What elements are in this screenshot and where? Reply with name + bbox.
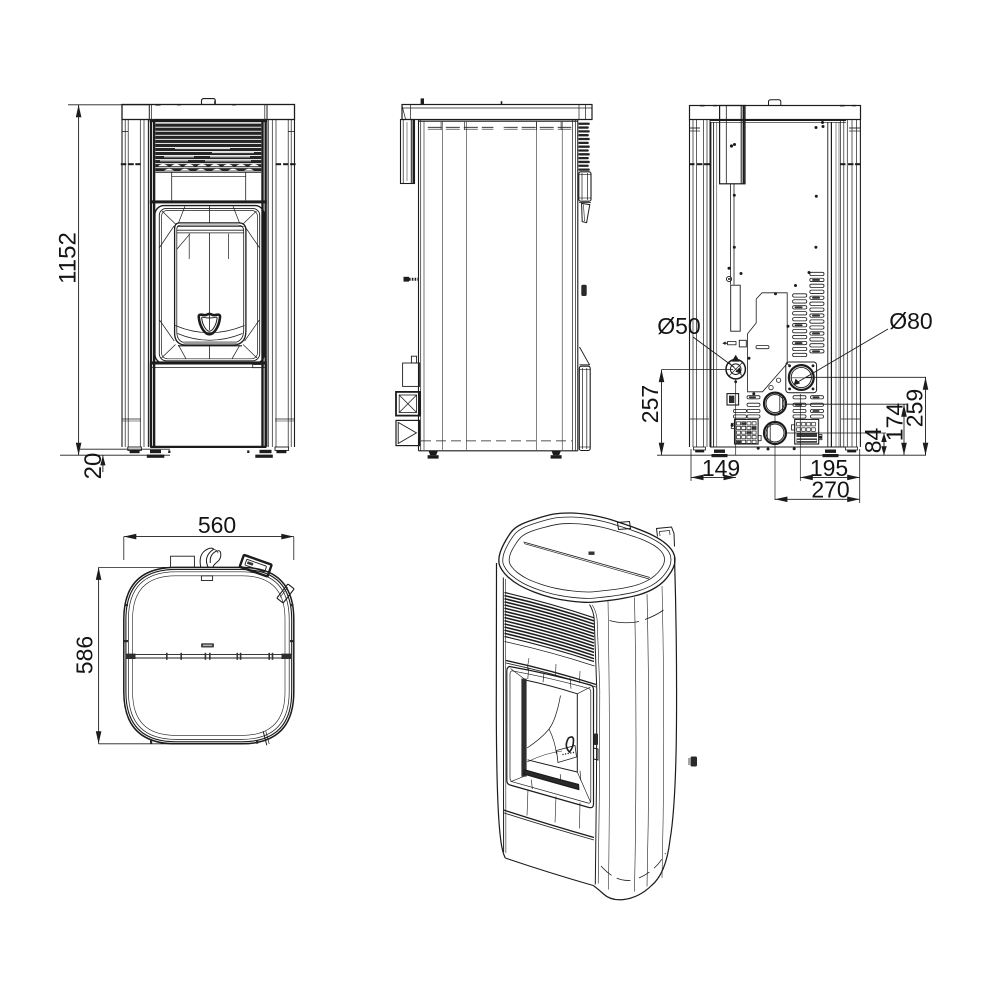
svg-text:560: 560 [198,512,236,538]
svg-text:270: 270 [811,477,849,503]
svg-text:Ø80: Ø80 [889,308,932,334]
svg-text:20: 20 [80,453,107,480]
svg-text:586: 586 [72,636,98,674]
svg-text:Ø50: Ø50 [657,313,700,339]
svg-text:1152: 1152 [55,232,82,284]
svg-text:257: 257 [637,385,663,423]
svg-text:149: 149 [702,455,740,481]
svg-text:259: 259 [902,389,928,427]
